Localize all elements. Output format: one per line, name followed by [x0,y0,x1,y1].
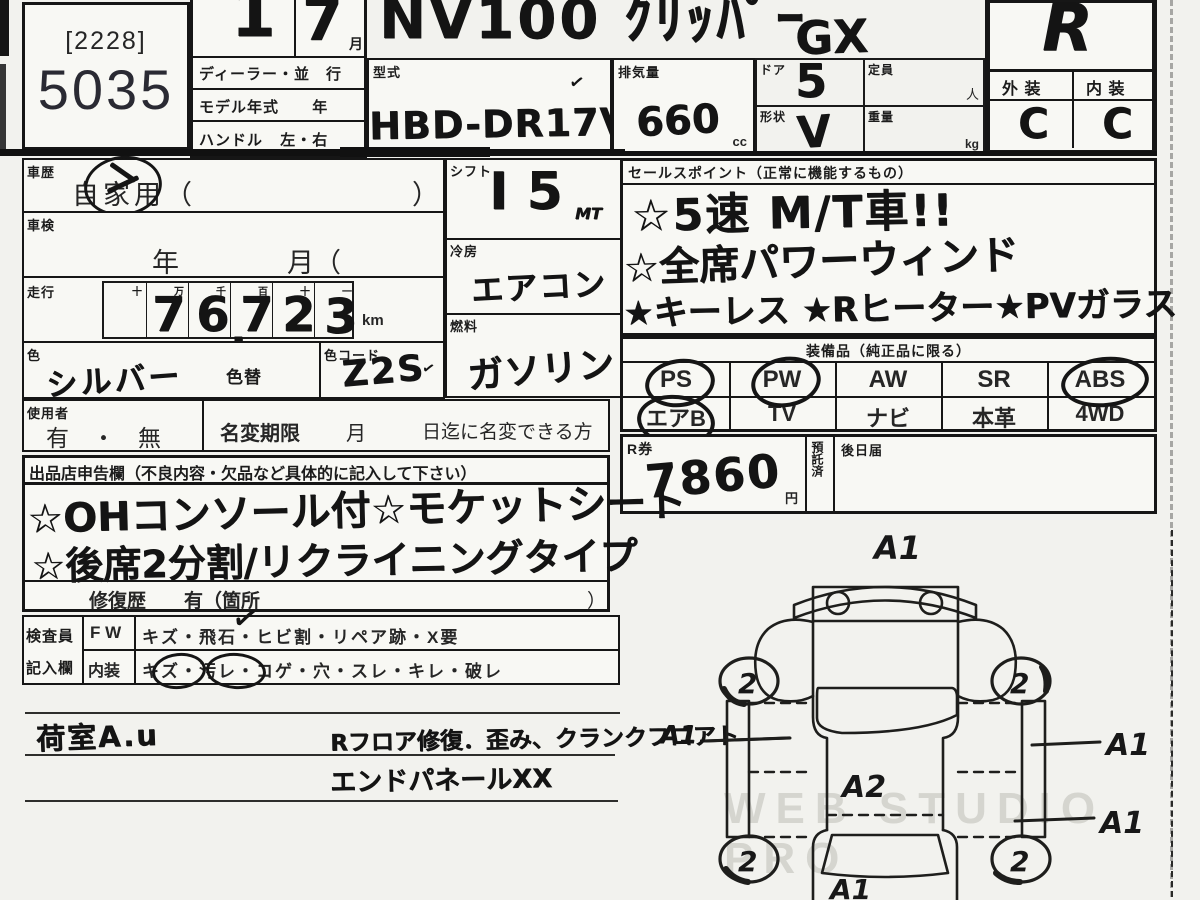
rticket-row: R券 7860 円 預託済 後日届 [620,434,1157,514]
pointer-right-1 [1032,742,1100,745]
diagram-label-right-2: A1 [1098,806,1144,841]
pointer-left [706,738,790,741]
door-value: 5 [795,54,827,108]
fuel-value: ガソリン [465,335,617,400]
color-row: 色 シルバー 色替 色コード Z2S ✓ [22,341,445,399]
rticket-deposit: 預託済 [809,441,826,477]
history-row: 車歴 自家用（ ） [22,158,445,213]
rticket-unit: 円 [785,488,798,507]
diagram-label-center: A2 [840,770,886,805]
inspector-label-top: 検査員 [26,625,74,646]
mileage-unit: km [362,312,384,329]
color-label: 色 [27,345,41,364]
equipment-box: 装備品（純正品に限る） PS PW AW SR ABS エアB TV ナビ 本革… [620,336,1157,432]
dealer-row: ディーラー・並 行 [199,63,342,84]
history-label: 車歴 [27,162,55,181]
displacement-value: 660 [635,96,721,146]
cooling-value: エアコン [470,258,608,311]
equipment-label: 装備品（純正品に限る） [623,341,1154,361]
model-year-row: モデル年式 年 [199,96,328,117]
capacity-label: 定員 [868,61,894,78]
digit-header: 十 [132,283,143,298]
divider [202,401,204,450]
mileage-digit-grid: 十 万 千 百 十 一 7 6 , 7 2 3 [102,281,354,339]
diagram-label-right-1: A1 [1104,728,1150,763]
color-code-value: Z2S [340,347,426,395]
shape-cell: 形状 V [755,105,865,155]
wheel-mark-fr: 2 [1010,667,1029,700]
rename-month: 月 [346,417,366,446]
month-unit: 月 [349,34,364,54]
rticket-later-label: 後日届 [841,440,883,459]
rule-line [25,800,618,802]
handle-row: ハンドル 左・右 [199,129,328,150]
sales-line-3: ★キーレス ★Rヒーター★PVガラス [623,276,1178,335]
rear-window [822,835,948,877]
auction-sheet: [2228] 5035 1 7 月 ディーラー・並 行 モデル年式 年 ハンドル… [0,0,1200,900]
header-left-grid: 1 7 月 ディーラー・並 行 モデル年式 年 ハンドル 左・右 [190,0,367,158]
divider [833,437,835,511]
color-change-label: 色替 [226,363,262,388]
mileage-row: 走行 十 万 千 百 十 一 7 6 , 7 2 3 km [22,276,445,343]
shift-suffix: MT [575,204,602,223]
divider [319,343,321,397]
rename-label: 名変期限 [220,417,300,446]
model-tick: ✓ [567,71,586,95]
margin-dashed-line [1171,530,1173,897]
displacement-box: 排気量 660 cc [612,58,755,155]
inspector-label-bottom: 記入欄 [26,657,74,678]
model-code-value: HBD-DR17V [369,100,631,149]
model-code-label: 型式 [373,62,401,81]
grade-panel: R 外 装 内 装 C C [985,0,1157,155]
weight-cell: 重量 kg [863,105,985,155]
inspector-items-1: キズ・飛石・ヒビ割・リペア跡・X要 [142,623,459,648]
capacity-cell: 定員 人 [863,58,985,107]
seller-box: 出品店申告欄（不良内容・欠品など具体的に記入して下さい） ☆OHコンソール付☆モ… [22,455,610,612]
shape-label: 形状 [760,108,786,125]
lot-bracket-number: [2228] [25,27,187,56]
equip-leather: 本革 [941,401,1047,433]
rocker-left [727,701,749,837]
divider [193,120,364,122]
divider [25,580,607,582]
shift-label: シフト [450,161,492,180]
mileage-digit: 2 [282,287,315,343]
diagram-label-rear: A1 [828,873,871,900]
handle-label: ハンドル [199,132,263,149]
shift-value: I 5 [489,162,563,222]
exterior-label: 外 装 [1002,75,1041,99]
car-grade: GX [794,9,869,58]
auction-count: 1 [231,0,276,52]
displacement-unit: cc [733,134,747,149]
model-code-box: 型式 ✓ HBD-DR17V [367,58,612,155]
mileage-digit: 7 [152,287,185,343]
spec-grid: ドア 5 定員 人 形状 V 重量 kg [755,58,985,155]
scan-mark [0,64,6,150]
mileage-digit: 3 [324,289,357,345]
exterior-grade: C [1018,99,1049,148]
diagram-label-front: A1 [871,529,921,567]
door-label: ドア [760,61,786,78]
car-name-area: NV100 ｸﾘｯﾊﾟｰ GX [367,0,985,58]
car-damage-diagram: A1 A2 A1 A1 A1 2 2 2 2 [690,525,1170,900]
month-value: 7 [302,0,342,54]
digit-cell: 十 [104,283,147,337]
fuel-label: 燃料 [450,316,478,335]
front-bumper [794,587,976,618]
lot-box: [2228] 5035 [22,2,190,150]
model-year-unit: 年 [312,99,328,116]
thick-rule [360,151,1157,156]
cooling-box: 冷房 エアコン [445,238,623,315]
history-close: ） [412,173,439,212]
inspector-box: 検査員 記入欄 F W キズ・飛石・ヒビ割・リペア跡・X要 内装 キズ・汚レ・コ… [22,615,620,685]
wheel-shade [1042,667,1047,691]
displacement-label: 排気量 [618,62,660,81]
overall-grade: R [1042,0,1093,66]
user-row: 使用者 有 ・ 無 名変期限 月 日迄に名変できる方 [22,399,610,452]
interior-label: 内 装 [1086,75,1125,99]
equip-aw: AW [835,366,941,394]
car-name: NV100 ｸﾘｯﾊﾟｰ [379,0,807,55]
inspector-head-2: 内装 [88,657,120,681]
shift-box: シフト I 5 MT [445,158,623,240]
mileage-label: 走行 [27,282,55,301]
windshield [817,688,957,733]
rocker-right [1022,701,1045,837]
pointer-right-2 [1015,818,1094,821]
rename-note: 日迄に名変できる方 [422,417,593,444]
divider [1072,69,1074,148]
door-cell: ドア 5 [755,58,865,107]
body-side-right [943,621,958,830]
interior-grade: C [1102,99,1133,148]
weight-unit: kg [965,137,979,151]
divider [193,88,364,90]
model-year-label: モデル年式 [199,99,279,116]
user-value: 有 ・ 無 [46,419,161,453]
handle-value: 左・右 [280,132,328,149]
mileage-digit: 7 [240,287,273,343]
fuel-box: 燃料 ガソリン [445,313,623,398]
wheel-mark-rl: 2 [738,845,757,878]
cooling-label: 冷房 [450,241,478,260]
repair-history-close: ） [587,586,606,613]
sales-point-box: セールスポイント（正常に機能するもの） ☆5速 M/T車!! ☆全席パワーウィン… [620,158,1157,336]
lot-number: 5035 [25,57,187,122]
count-cell: 1 [193,0,296,58]
divider [990,69,1152,72]
equip-navi: ナビ [835,401,941,433]
capacity-unit: 人 [966,84,979,103]
equip-sr: SR [941,366,1047,394]
month-cell: 7 月 [294,0,367,58]
divider [805,437,807,511]
note-right-2: エンドパネールXX [330,758,553,799]
scan-mark [0,0,9,56]
inspector-head-1: F W [90,623,121,643]
color-value: シルバー [45,350,184,404]
wheel-mark-fl: 2 [738,667,757,700]
mileage-digit: 6 [196,287,229,343]
shaken-label: 車検 [27,215,55,234]
divider [82,649,618,651]
weight-label: 重量 [868,108,894,125]
wheel-mark-rr: 2 [1010,845,1029,878]
note-left: 荷室A.u [35,712,159,758]
shaken-row: 車検 年 月（ 日） [22,211,445,278]
